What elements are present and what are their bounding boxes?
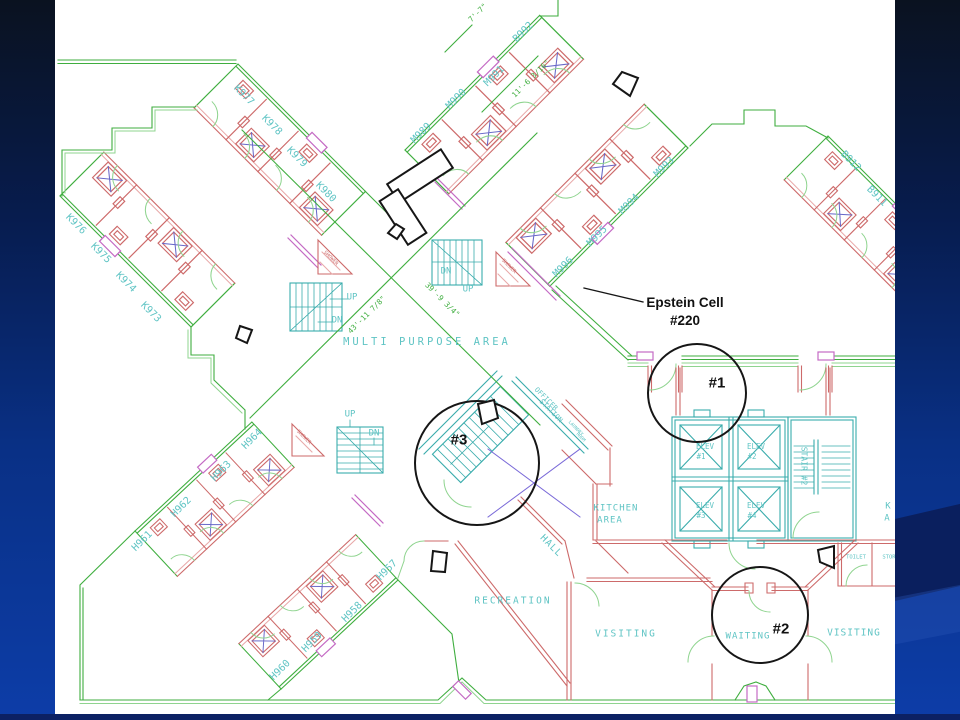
plan-label: VISITING [595,629,657,640]
plan-label: UP [347,293,358,303]
plan-label: K979 [284,145,309,170]
plan-label: M994 [617,192,642,217]
plan-label: TOILET [846,555,867,561]
plan-label: AREA [597,516,623,526]
plan-label: M996 [551,255,576,280]
plan-label: 7'-7" [466,1,488,23]
plan-label: UP [345,410,356,420]
door-marker-6 [478,400,498,424]
annotation-circle-1 [648,344,746,442]
shower-rooms [292,240,530,456]
plan-label: H957 [375,558,400,583]
epstein-annotation: Epstein Cell #220 [646,294,723,330]
plan-label: STOR [882,555,895,561]
door-marker-2 [431,551,447,572]
plan-label: H964 [240,427,265,452]
floorplan-drawing: K977K978K979K980K976K975K974K973M989M990… [55,0,895,714]
epstein-arrow-line [584,288,643,302]
dimension-lines [242,25,540,425]
plan-label: K980 [313,180,338,205]
plan-label: VISITING [827,628,881,639]
wing-K-northeast [194,61,368,235]
circle-1-label: #1 [709,375,726,392]
annotation-circle-2 [712,567,808,663]
plan-label: A [884,514,890,524]
wing-M-southeast [506,104,691,289]
epstein-annotation-line1: Epstein Cell [646,294,723,312]
plan-label: H960 [268,658,293,683]
plan-label: DN [332,316,343,326]
plan-label: DN [441,267,452,277]
slide: { "slide": { "bg_top": "#0a1220", "bg_mi… [0,0,960,720]
plan-label: B911 [864,184,889,209]
wing-H-southwest [239,535,401,692]
plan-label: K973 [138,300,163,325]
officer-station-area [419,371,612,517]
plan-label: WAITING [726,632,771,642]
plan-label: #1 [696,452,705,461]
door-marker-1 [613,72,638,96]
plan-label: ELEV [747,442,766,451]
plan-label: K [885,502,891,512]
plan-label: KITCHEN [594,504,639,514]
plan-label: ELEV [696,442,715,451]
plan-label: RECREATION [474,596,551,607]
door-marker-3 [818,546,834,568]
plan-label: #2 [747,452,756,461]
plan-label: H958 [340,600,365,625]
plan-label: K978 [259,113,284,138]
plan-label: #3 [696,511,705,520]
circle-3-label: #3 [451,432,468,449]
southeast-rooms [398,450,895,700]
plan-label: 39'-9 3/4" [423,280,461,318]
plan-label: STAIR #2 [800,447,809,486]
wing-B-right [784,133,895,300]
plan-label: ELEV [747,501,766,510]
plan-label: K977 [231,83,256,108]
plan-label: UP [463,285,474,295]
plan-label: ELEV [696,501,715,510]
plan-label: #4 [747,511,757,520]
door-marker-5 [236,326,252,343]
epstein-annotation-line2: #220 [646,312,723,330]
circle-2-label: #2 [773,621,790,638]
floor-plan: K977K978K979K980K976K975K974K973M989M990… [55,0,895,714]
annotation-circle-3 [415,401,539,525]
slide-bottom-strip [0,714,960,720]
plan-label: K974 [113,270,138,295]
stair-multipurpose-north [432,240,482,285]
wing-H-northeast [132,419,294,576]
plan-label: DN [369,429,380,439]
plan-label: H962 [169,495,194,520]
elevator-core [672,410,856,548]
plan-label: MULTI PURPOSE AREA [343,336,511,348]
